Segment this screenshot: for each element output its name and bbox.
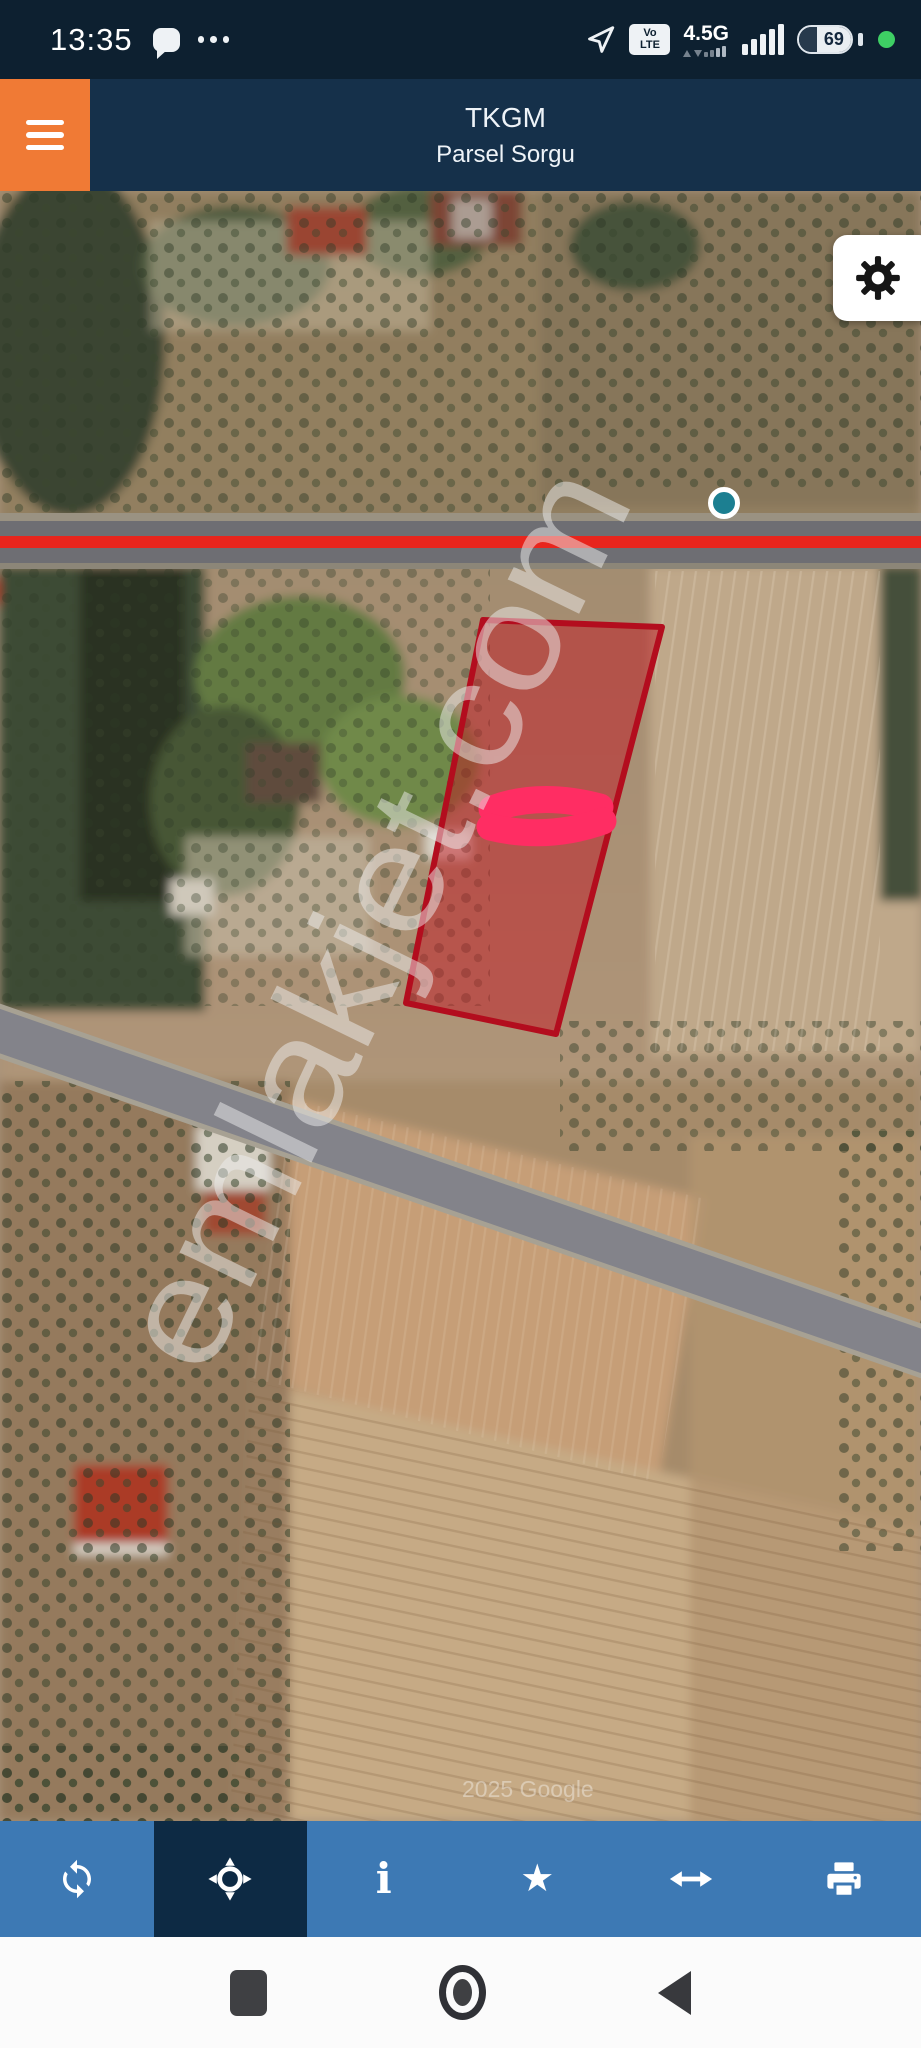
print-icon — [823, 1858, 865, 1900]
signal-bars-icon — [742, 24, 784, 55]
data-activity-icon — [683, 46, 726, 57]
home-icon — [439, 1965, 486, 2020]
settings-button[interactable] — [833, 235, 921, 321]
gear-icon — [855, 255, 901, 301]
battery-nub — [858, 33, 863, 46]
info-button[interactable]: i — [307, 1821, 461, 1937]
locate-button[interactable] — [154, 1821, 308, 1937]
app-header: TKGM Parsel Sorgu — [0, 79, 921, 191]
map-toolbar: i ★ — [0, 1821, 921, 1937]
recents-button[interactable] — [224, 1969, 273, 2017]
recents-icon — [230, 1970, 267, 2016]
status-bar: 13:35 VoLTE 4.5G 69 — [0, 0, 921, 79]
hamburger-icon — [26, 120, 64, 126]
header-title: TKGM Parsel Sorgu — [90, 79, 921, 191]
app-title: TKGM — [465, 102, 546, 134]
battery-percent: 69 — [817, 27, 851, 52]
recording-dot — [878, 31, 895, 48]
status-icons: VoLTE 4.5G 69 — [585, 23, 895, 57]
map-attribution: 2025 Google — [462, 1776, 594, 1802]
message-bubble-icon — [153, 28, 180, 52]
map-marker[interactable] — [711, 490, 738, 517]
measure-button[interactable] — [614, 1821, 768, 1937]
info-icon: i — [376, 1858, 392, 1900]
back-icon — [658, 1971, 691, 2015]
resize-horizontal-icon — [669, 1857, 713, 1901]
locate-icon — [208, 1857, 252, 1901]
more-dots-icon — [198, 36, 230, 43]
home-button[interactable] — [433, 1964, 492, 2021]
battery-icon: 69 — [797, 25, 853, 54]
app-subtitle: Parsel Sorgu — [436, 141, 575, 169]
favorite-button[interactable]: ★ — [461, 1821, 615, 1937]
android-nav-bar — [0, 1937, 921, 2048]
volte-badge: VoLTE — [629, 24, 670, 55]
clock: 13:35 — [50, 22, 133, 58]
menu-button[interactable] — [0, 79, 90, 191]
print-button[interactable] — [768, 1821, 921, 1937]
map-canvas: emlakjet.com 2025 Google — [0, 191, 921, 1821]
back-button[interactable] — [652, 1970, 697, 2016]
refresh-icon — [56, 1858, 98, 1900]
satellite-map[interactable]: emlakjet.com 2025 Google — [0, 191, 921, 1821]
refresh-button[interactable] — [0, 1821, 154, 1937]
star-icon: ★ — [520, 1860, 554, 1898]
navigation-arrow-icon — [585, 24, 616, 55]
network-type: 4.5G — [683, 23, 729, 57]
